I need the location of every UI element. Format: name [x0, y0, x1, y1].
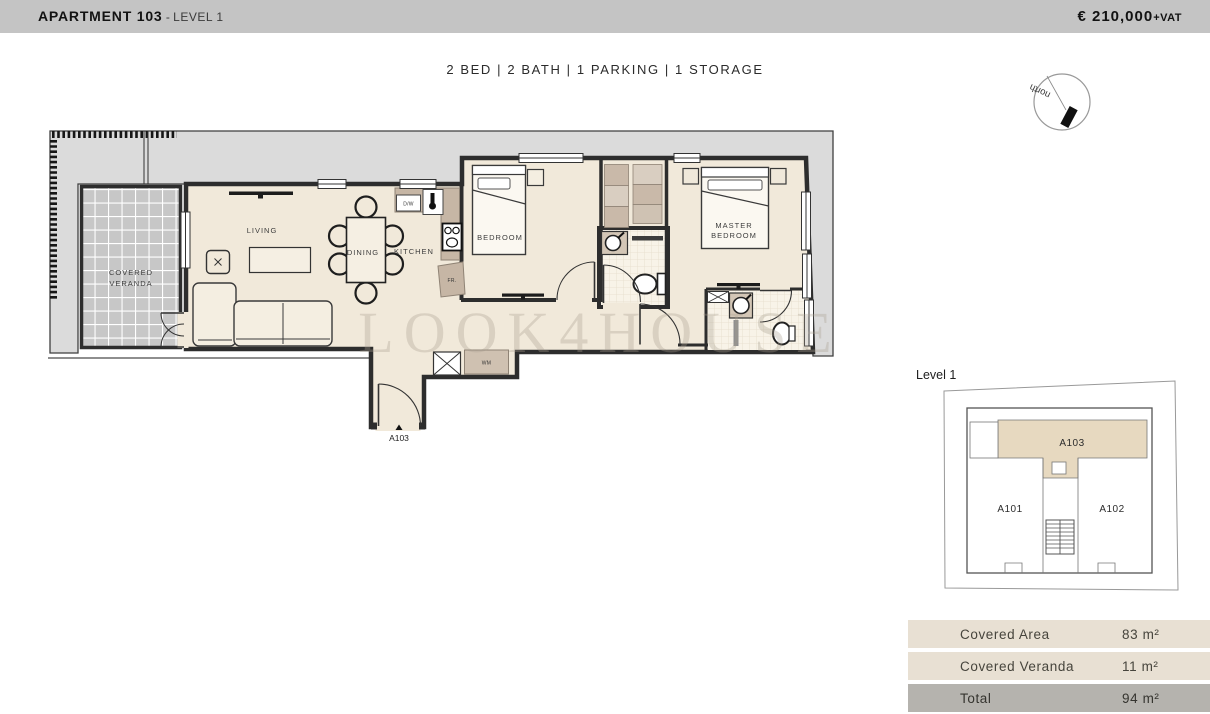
master-bedroom-label-1: MASTER [715, 221, 752, 230]
master-bedroom-label-2: BEDROOM [711, 231, 757, 240]
covered-veranda-floor [82, 187, 181, 348]
table-row: Covered Veranda 11 m² [908, 652, 1210, 680]
fridge-label: FR. [448, 278, 457, 284]
nightstand [528, 170, 544, 186]
keyplan-a101-label: A101 [997, 504, 1022, 515]
total-value: 94 m² [1122, 691, 1210, 706]
nightstand-left [683, 169, 699, 185]
total-label: Total [908, 691, 1122, 706]
bedroom-label: BEDROOM [477, 233, 523, 242]
veranda-label-1: COVERED [109, 268, 153, 277]
nightstand-right [771, 169, 787, 185]
coffee-table [250, 248, 311, 273]
keyplan-a102-label: A102 [1099, 504, 1124, 515]
tv-master [717, 283, 760, 286]
covered-area-value: 83 m² [1122, 627, 1210, 642]
veranda-label-2: VERANDA [109, 279, 152, 288]
toilet [634, 275, 657, 294]
covered-veranda-value: 11 m² [1122, 659, 1210, 674]
table-row: Covered Area 83 m² [908, 620, 1210, 648]
tv-bedroom [502, 294, 544, 297]
entry-door-label: A103 [389, 433, 409, 443]
bathroom-shelf [632, 236, 663, 241]
keyplan-a103-label: A103 [1059, 438, 1084, 449]
dishwasher-label: D/W [403, 202, 414, 208]
keyplan-stairs [1046, 520, 1074, 554]
kitchen-label: KITCHEN [394, 247, 434, 256]
floorplan-page: APARTMENT 103 - LEVEL 1 € 210,000+VAT 2 … [0, 0, 1210, 714]
key-plan: Level 1 A103 A101 A102 [916, 368, 1178, 590]
dining-label: DINING [347, 248, 379, 257]
watermark: LOOK4HOUSE [358, 300, 841, 365]
covered-veranda-label: Covered Veranda [908, 659, 1122, 674]
tv-living [229, 192, 293, 196]
wardrobes [605, 165, 663, 228]
floorplan-drawing: D/W FR. WM [0, 0, 1210, 714]
north-arrow-icon: north [1028, 74, 1090, 130]
table-row-total: Total 94 m² [908, 684, 1210, 712]
areas-table: Covered Area 83 m² Covered Veranda 11 m²… [908, 620, 1210, 714]
sofa-chaise [193, 283, 236, 346]
covered-area-label: Covered Area [908, 627, 1122, 642]
living-label: LIVING [247, 226, 278, 235]
keyplan-title: Level 1 [916, 368, 956, 382]
